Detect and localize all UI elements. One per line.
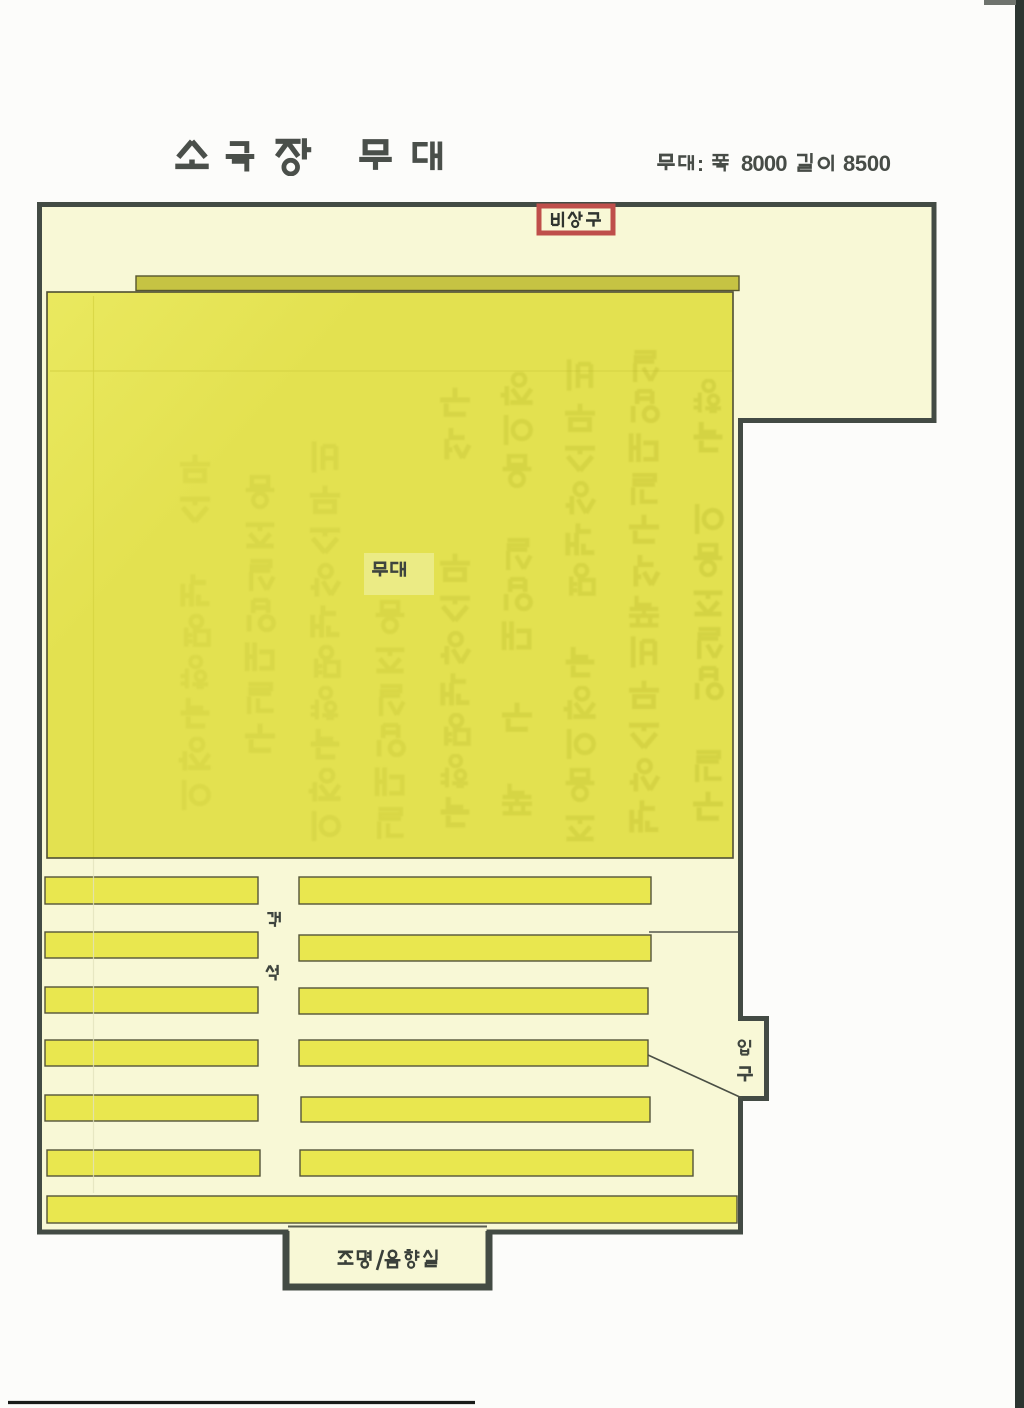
- svg-text::: :: [697, 153, 704, 176]
- svg-text:8000: 8000: [741, 151, 787, 176]
- svg-text:8500: 8500: [843, 151, 891, 176]
